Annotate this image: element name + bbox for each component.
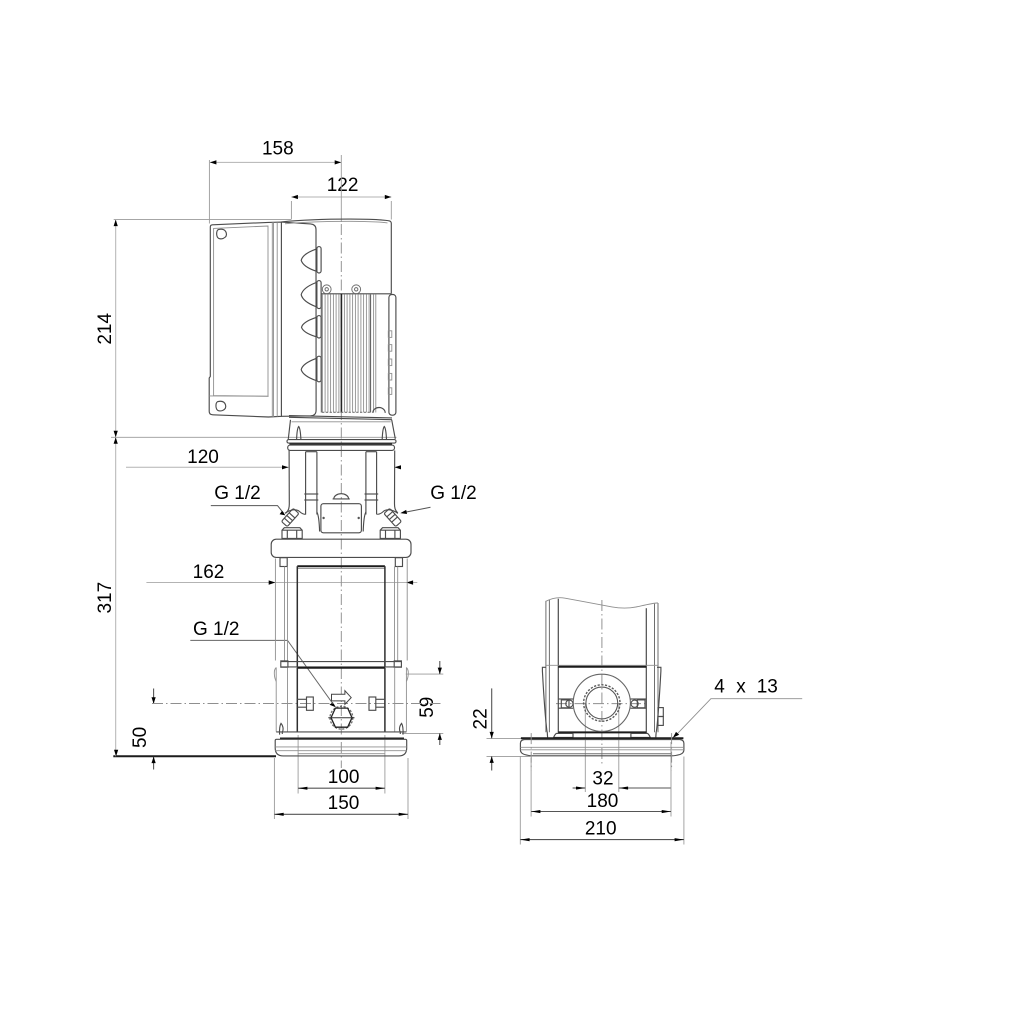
svg-text:G 1/2: G 1/2 <box>214 483 260 504</box>
svg-text:317: 317 <box>95 582 116 614</box>
svg-text:162: 162 <box>193 562 225 583</box>
svg-text:59: 59 <box>417 697 438 718</box>
svg-text:210: 210 <box>585 818 617 839</box>
svg-text:100: 100 <box>328 767 360 788</box>
svg-text:122: 122 <box>327 175 359 196</box>
svg-text:120: 120 <box>187 447 219 468</box>
svg-text:13: 13 <box>757 677 778 698</box>
svg-text:158: 158 <box>262 139 294 160</box>
svg-text:50: 50 <box>130 727 151 748</box>
svg-text:x: x <box>736 677 746 698</box>
svg-text:G 1/2: G 1/2 <box>193 619 239 640</box>
svg-text:180: 180 <box>587 791 619 812</box>
svg-text:4: 4 <box>714 677 725 698</box>
svg-text:G 1/2: G 1/2 <box>430 483 476 504</box>
svg-text:32: 32 <box>592 768 613 789</box>
svg-text:22: 22 <box>470 708 491 729</box>
svg-text:214: 214 <box>95 313 116 345</box>
svg-text:150: 150 <box>328 793 360 814</box>
